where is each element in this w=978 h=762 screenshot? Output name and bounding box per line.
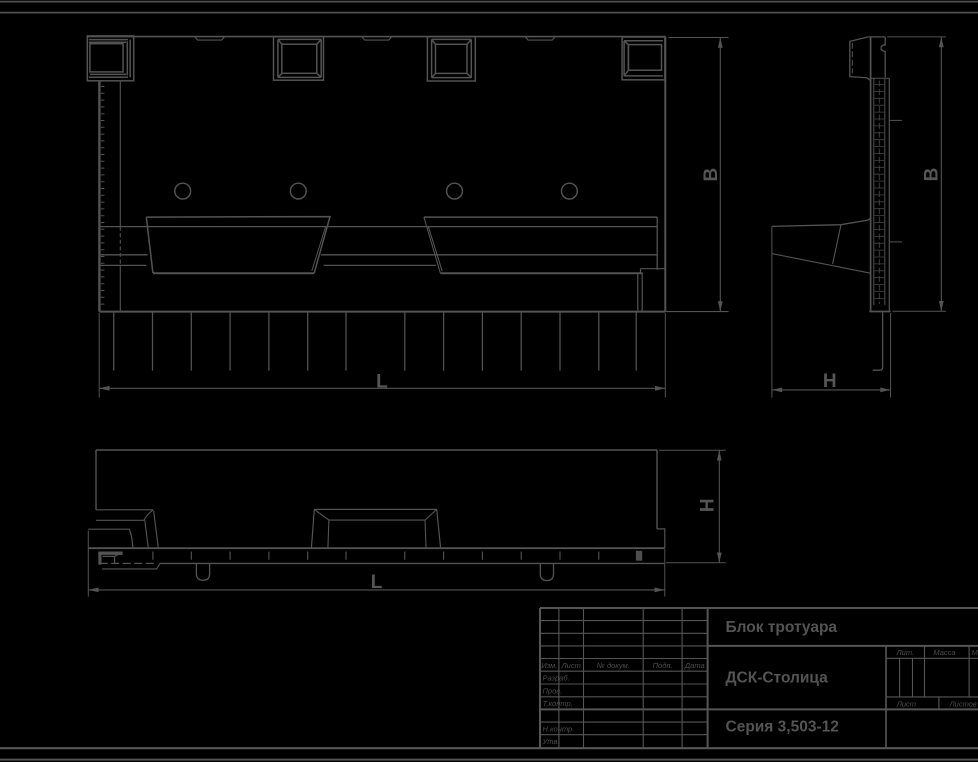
svg-text:B: B bbox=[701, 168, 722, 182]
svg-text:ДСК-Столица: ДСК-Столица bbox=[726, 669, 829, 686]
svg-text:Листов: Листов bbox=[949, 700, 977, 709]
svg-text:Утв.: Утв. bbox=[542, 737, 560, 746]
svg-text:№ докум.: № докум. bbox=[597, 661, 630, 670]
svg-text:Изм.: Изм. bbox=[541, 661, 557, 670]
svg-text:H: H bbox=[698, 498, 719, 512]
svg-text:Лист: Лист bbox=[896, 700, 916, 709]
svg-text:Лит.: Лит. bbox=[896, 648, 915, 657]
svg-text:Блок тротуара: Блок тротуара bbox=[726, 619, 838, 636]
svg-text:Дата: Дата bbox=[684, 661, 705, 670]
svg-text:L: L bbox=[371, 572, 383, 593]
svg-text:Масса: Масса bbox=[933, 648, 955, 657]
svg-text:Т.контр.: Т.контр. bbox=[543, 699, 573, 708]
svg-text:Подп.: Подп. bbox=[653, 661, 673, 670]
svg-text:Лист: Лист bbox=[561, 661, 581, 670]
svg-text:Н.контр.: Н.контр. bbox=[543, 724, 575, 733]
svg-text:L: L bbox=[376, 372, 388, 393]
svg-text:Разраб.: Разраб. bbox=[543, 674, 570, 683]
svg-text:H: H bbox=[823, 371, 837, 392]
svg-text:Пров.: Пров. bbox=[543, 686, 563, 695]
svg-text:B: B bbox=[921, 168, 942, 182]
svg-text:Серия 3,503-12: Серия 3,503-12 bbox=[726, 719, 839, 736]
svg-text:Масштаб: Масштаб bbox=[972, 648, 978, 657]
